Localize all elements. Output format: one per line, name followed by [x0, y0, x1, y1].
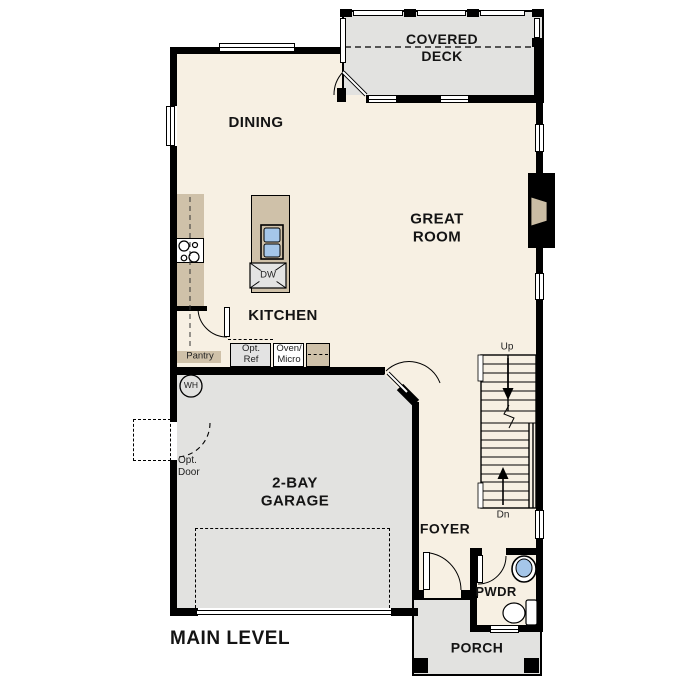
stairs-up-label: Up: [501, 341, 514, 353]
door-swings: [176, 72, 506, 590]
stove-burners: [179, 241, 199, 262]
fireplace-insert: [531, 197, 547, 226]
pantry-label: Pantry: [186, 352, 213, 363]
room-label-porch: PORCH: [451, 639, 504, 656]
staircase: [478, 355, 536, 508]
opt-door-label: Opt. Door: [178, 455, 212, 478]
room-label-great-room: GREAT ROOM: [392, 211, 482, 248]
stairs-dn-label: Dn: [497, 509, 510, 521]
room-label-garage: 2-BAY GARAGE: [240, 475, 350, 512]
floor-plan: COVERED DECK DINING GREAT ROOM KITCHEN 2…: [0, 0, 687, 687]
room-label-pwdr: PWDR: [475, 584, 516, 600]
porch-post: [524, 658, 539, 673]
room-label-dining: DINING: [229, 114, 284, 132]
room-label-foyer: FOYER: [420, 520, 470, 537]
oven-micro-label: Oven/ Micro: [272, 344, 306, 366]
plan-details: [0, 0, 687, 687]
toilet-tank: [526, 600, 537, 625]
room-label-kitchen: KITCHEN: [248, 307, 317, 325]
toilet-bowl: [503, 603, 525, 623]
porch-post: [413, 658, 428, 673]
opt-ref-label: Opt. Ref: [236, 344, 266, 366]
pwdr-sink-basin: [516, 559, 532, 577]
sink-basin: [264, 228, 280, 242]
dw-label: DW: [259, 271, 277, 282]
wh-label: WH: [184, 381, 198, 391]
plan-title: MAIN LEVEL: [170, 628, 290, 650]
room-label-covered-deck: COVERED DECK: [396, 31, 488, 65]
sink-basin: [264, 244, 280, 257]
